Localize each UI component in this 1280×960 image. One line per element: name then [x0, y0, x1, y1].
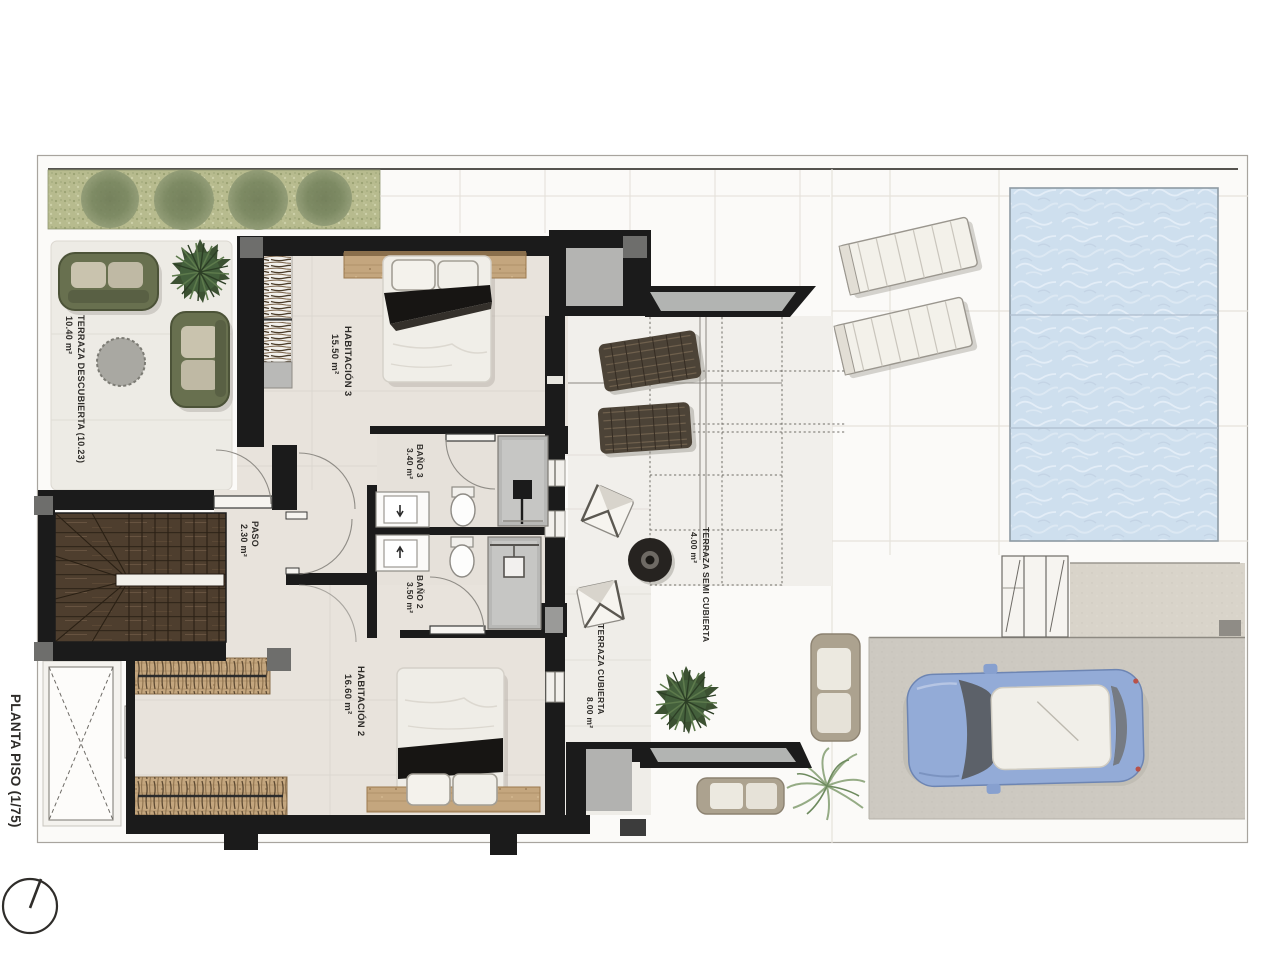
- svg-text:BAÑO 3: BAÑO 3: [415, 444, 425, 478]
- svg-text:TERRAZA SEMI CUBIERTA: TERRAZA SEMI CUBIERTA: [701, 527, 711, 642]
- svg-text:TERRAZA CUBIERTA: TERRAZA CUBIERTA: [596, 624, 606, 715]
- svg-text:2.30 m²: 2.30 m²: [239, 524, 249, 557]
- svg-text:10.40 m²: 10.40 m²: [64, 316, 74, 354]
- svg-text:PASO: PASO: [250, 521, 260, 547]
- svg-text:HABITACIÓN 2: HABITACIÓN 2: [355, 666, 367, 736]
- svg-text:4.00 m²: 4.00 m²: [689, 532, 699, 563]
- svg-text:TERRAZA DESCUBIERTA (10.23): TERRAZA DESCUBIERTA (10.23): [76, 315, 86, 463]
- svg-text:3.40 m²: 3.40 m²: [405, 448, 415, 479]
- svg-text:15.50 m²: 15.50 m²: [329, 334, 340, 374]
- svg-text:16.60 m²: 16.60 m²: [342, 674, 353, 714]
- svg-text:PLANTA PISO (1/75): PLANTA PISO (1/75): [8, 694, 23, 828]
- svg-text:BAÑO 2: BAÑO 2: [415, 575, 425, 609]
- svg-text:8.00 m²: 8.00 m²: [585, 697, 595, 728]
- svg-text:3.50 m²: 3.50 m²: [405, 582, 415, 613]
- svg-text:HABITACIÓN 3: HABITACIÓN 3: [342, 326, 354, 396]
